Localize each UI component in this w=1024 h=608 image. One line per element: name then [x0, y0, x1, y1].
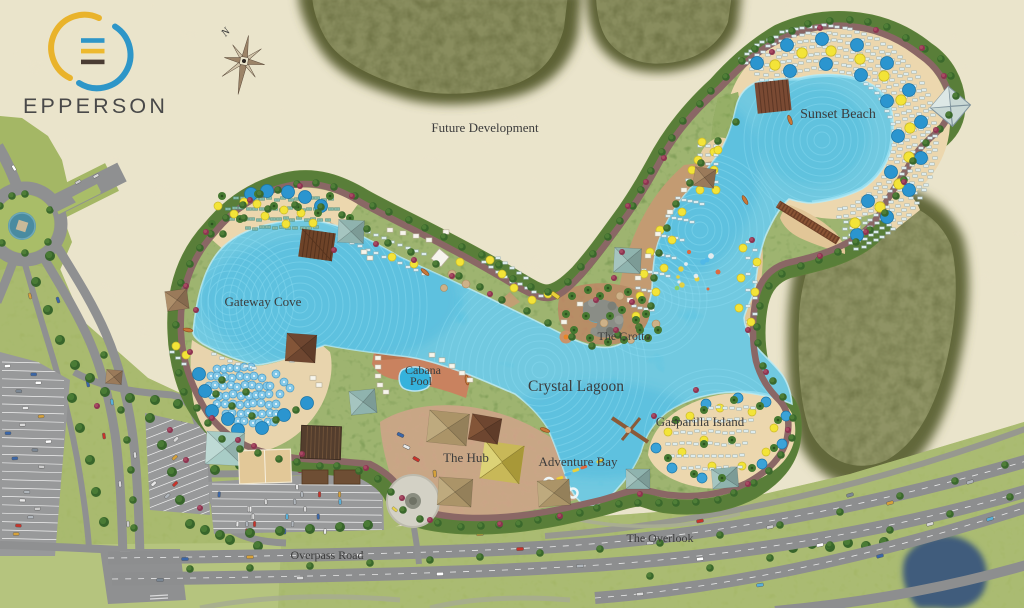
svg-text:Pool: Pool [410, 374, 433, 388]
svg-text:EPPERSON: EPPERSON [23, 94, 168, 118]
svg-text:The Hub: The Hub [443, 450, 489, 465]
svg-text:Overpass Road: Overpass Road [291, 548, 364, 562]
svg-text:Sunset Beach: Sunset Beach [800, 107, 876, 122]
svg-text:The Overlook: The Overlook [627, 531, 694, 545]
svg-text:Gasparilla Island: Gasparilla Island [656, 414, 745, 429]
svg-text:Gateway Cove: Gateway Cove [225, 294, 302, 309]
svg-text:Adventure Bay: Adventure Bay [538, 454, 618, 469]
svg-text:Future Development: Future Development [431, 120, 539, 135]
svg-text:Crystal Lagoon: Crystal Lagoon [528, 378, 624, 395]
svg-text:The Grotto: The Grotto [598, 329, 651, 343]
